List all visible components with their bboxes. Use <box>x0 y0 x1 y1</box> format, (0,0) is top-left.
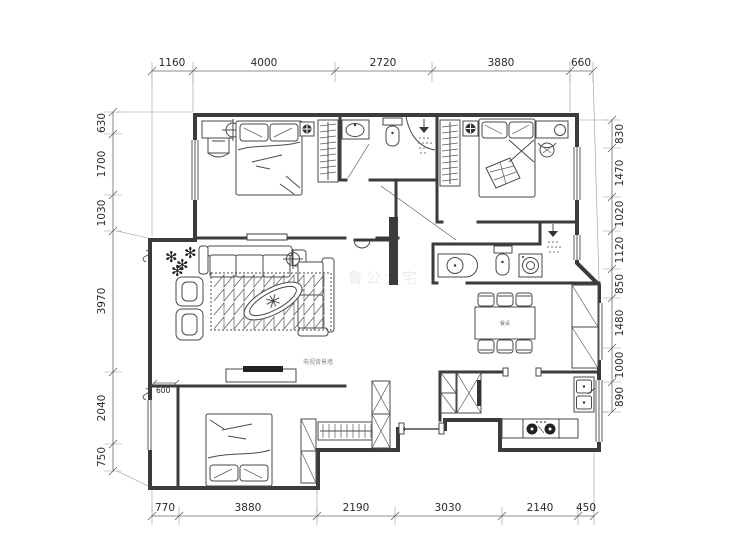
armchair-2-symbol <box>176 309 203 340</box>
washbasin-1-symbol <box>342 120 369 139</box>
window-bedroom1-left <box>191 140 199 200</box>
wardrobe-2-symbol <box>440 120 460 186</box>
floor-plan-svg: 1160 4000 2720 3880 660 770 3880 2190 30… <box>0 0 740 555</box>
washing-machine-symbol <box>519 254 542 277</box>
entry-door-jamb-right <box>439 423 444 434</box>
armchair-1-symbol <box>176 277 203 306</box>
side-cabinet-symbol <box>301 419 316 483</box>
svg-text:✻: ✻ <box>184 244 197 262</box>
sink-symbol <box>574 377 595 412</box>
coffee-table-symbol <box>239 274 308 327</box>
dining-table-label: 餐桌 <box>500 320 510 327</box>
dim-right-4: 1120 <box>614 237 626 264</box>
bedroom-2 <box>440 119 568 197</box>
dim-left-6: 750 <box>96 447 108 467</box>
bath1-door-leaf <box>348 144 369 178</box>
dim-bottom-5: 2140 <box>527 502 554 514</box>
bed-1-symbol <box>236 121 302 195</box>
stove-symbol <box>523 419 559 438</box>
dim-top-3: 2720 <box>370 57 397 69</box>
dim-right-7: 1000 <box>614 352 626 379</box>
bathroom-1 <box>342 117 435 178</box>
toilet-2-symbol <box>494 246 512 275</box>
washbasin-2-symbol <box>438 254 478 277</box>
dim-right-5: 850 <box>614 274 626 294</box>
dim-left-3: 1030 <box>96 200 108 227</box>
stool-symbol <box>208 138 229 157</box>
bed-2-symbol <box>479 119 535 197</box>
dim-left-4: 3970 <box>96 288 108 315</box>
bedroom1-tv-symbol <box>247 234 287 240</box>
dim-top-4: 3880 <box>488 57 515 69</box>
vent-icon <box>300 122 314 136</box>
wardrobe-1-symbol <box>318 120 338 182</box>
vent-icon-2 <box>463 121 478 136</box>
chair-symbol <box>538 143 556 157</box>
toilet-1-symbol <box>383 118 402 146</box>
tv-symbol <box>243 366 283 372</box>
dim-right-2: 1470 <box>614 160 626 187</box>
dim-top-1: 1160 <box>159 57 186 69</box>
dim-top-2: 4000 <box>251 57 278 69</box>
shoe-cabinet-symbol <box>441 373 481 413</box>
dim-top-5: 660 <box>571 57 591 69</box>
dim-right-3: 1020 <box>614 201 626 228</box>
kitchen-door-jamb-left <box>503 368 508 376</box>
dim-right-1: 830 <box>614 124 626 144</box>
wardrobe-end-cabinet-symbol <box>372 381 390 448</box>
shower-1-symbol <box>406 117 435 154</box>
window-balcony-left <box>146 400 154 450</box>
dining-area: 餐桌 <box>475 285 598 368</box>
living-room: ✻✻✻✻ <box>151 244 334 395</box>
bedroom-3 <box>206 381 390 486</box>
dim-bottom-6: 450 <box>576 502 596 514</box>
dim-inline-600: 600 <box>156 386 171 395</box>
kitchen-door-jamb-right <box>536 368 541 376</box>
dim-left-5: 2040 <box>96 395 108 422</box>
tall-cabinet-symbol <box>572 285 598 368</box>
bedroom-1 <box>202 119 338 240</box>
plant-symbol: ✻✻✻✻ <box>165 244 197 280</box>
bed-3-symbol <box>206 414 272 486</box>
window-kitchen-right <box>595 380 603 442</box>
wardrobe-3-symbol <box>318 422 374 440</box>
bathroom-2 <box>438 224 561 277</box>
watermark-text: 鲁公大宅 <box>348 269 420 287</box>
shower-2-symbol <box>547 224 561 253</box>
tv-wall-label: 电视背景墙 <box>303 358 333 366</box>
dim-bottom-3: 2190 <box>343 502 370 514</box>
wall-column <box>389 217 398 285</box>
desk-symbol <box>536 121 568 138</box>
dim-left-1: 630 <box>96 113 108 133</box>
dim-bottom-1: 770 <box>155 502 175 514</box>
dim-bottom-4: 3030 <box>435 502 462 514</box>
dim-right-8: 890 <box>614 387 626 407</box>
dim-left-2: 1700 <box>96 151 108 178</box>
tv-cabinet-symbol <box>226 366 296 382</box>
dim-right-6: 1480 <box>614 310 626 337</box>
dim-bottom-2: 3880 <box>235 502 262 514</box>
